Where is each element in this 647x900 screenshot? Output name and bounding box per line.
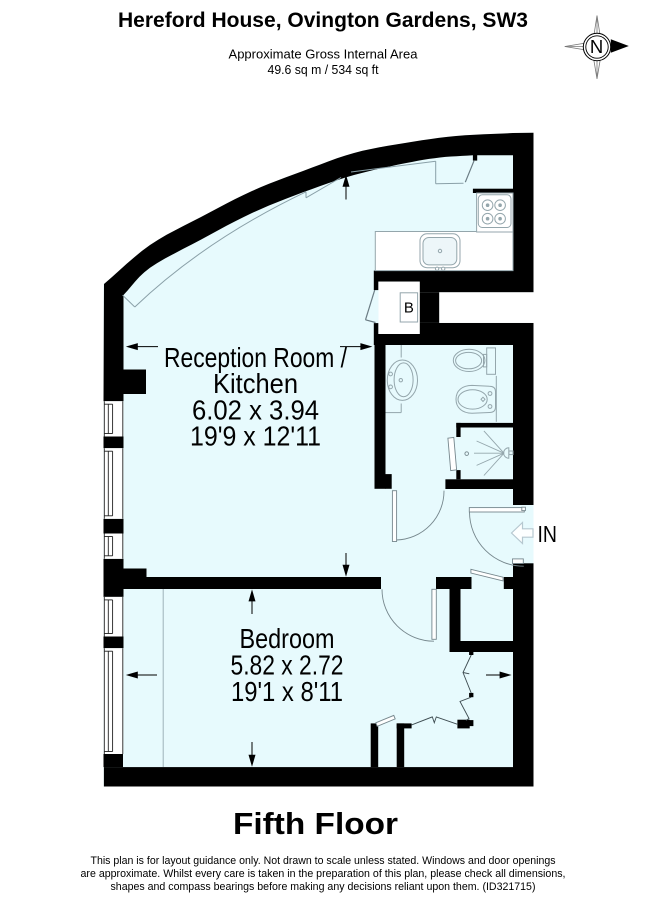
- svg-text:IN: IN: [538, 521, 558, 547]
- svg-text:Approximate Gross Internal Are: Approximate Gross Internal Area: [229, 48, 418, 62]
- svg-text:B: B: [404, 300, 414, 317]
- svg-text:Fifth Floor: Fifth Floor: [233, 807, 398, 841]
- svg-text:19'1 x 8'11: 19'1 x 8'11: [231, 676, 343, 707]
- svg-text:N: N: [590, 36, 603, 57]
- svg-text:19'9 x 12'11: 19'9 x 12'11: [190, 421, 321, 452]
- svg-text:Hereford House, Ovington Garde: Hereford House, Ovington Gardens, SW3: [118, 8, 528, 32]
- svg-text:shapes and compass bearings be: shapes and compass bearings before makin…: [111, 881, 536, 893]
- svg-text:49.6 sq m / 534 sq ft: 49.6 sq m / 534 sq ft: [268, 63, 380, 77]
- svg-text:This plan is for layout guidan: This plan is for layout guidance only. N…: [91, 855, 556, 867]
- svg-text:are approximate. Whilst every: are approximate. Whilst every care is ta…: [81, 868, 566, 880]
